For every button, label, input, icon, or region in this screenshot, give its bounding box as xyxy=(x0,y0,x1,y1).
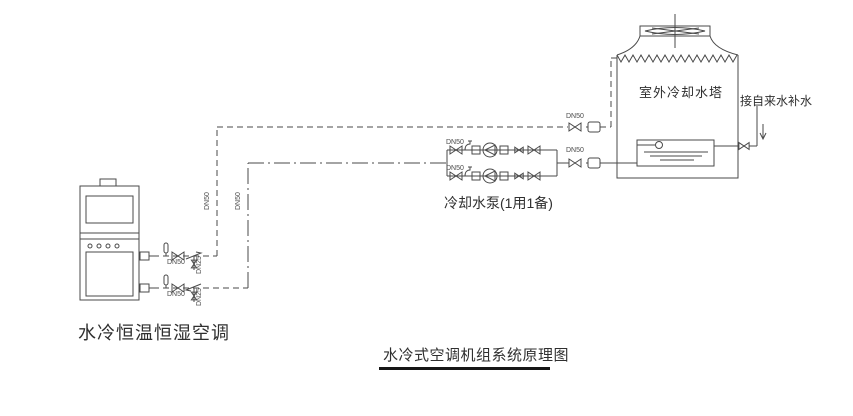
ac-indicator-dots xyxy=(88,244,119,248)
flex-connector-icon xyxy=(465,141,472,150)
riser-pipe-size-label: DN50 xyxy=(204,192,211,210)
pump-branch-size-label: DN50 xyxy=(446,139,464,146)
title-underline xyxy=(379,367,550,370)
makeup-water-line xyxy=(714,106,766,149)
drift-eliminator-zigzag xyxy=(617,55,737,62)
thermometer-icon xyxy=(164,243,168,256)
makeup-valve-icon xyxy=(739,143,749,150)
tower-flare-left xyxy=(617,36,640,55)
drain-pipe-size-label: DN25 xyxy=(196,288,203,306)
ac-unit-cabinet xyxy=(80,179,153,300)
ac-upper-panel xyxy=(86,196,133,223)
ac-pipe-connector-top xyxy=(140,252,149,260)
water-surface-lines xyxy=(644,152,708,160)
valve-icon xyxy=(569,123,581,131)
ac-upper-section xyxy=(80,186,139,233)
pump-group-label: 冷却水泵(1用1备) xyxy=(444,193,553,213)
float-valve-icon xyxy=(656,142,663,149)
pipe-size-label: DN50 xyxy=(167,291,185,298)
riser-pipe-size-label: DN50 xyxy=(235,192,242,210)
makeup-water-label: 接自来水补水 xyxy=(740,92,812,109)
flexible-joint-icon xyxy=(586,158,602,168)
tower-basin xyxy=(637,140,714,166)
pipe-size-label: DN50 xyxy=(167,259,185,266)
flow-arrow-down-icon xyxy=(760,124,766,139)
ac-top-tab xyxy=(100,179,116,186)
ac-pipe-connector-bottom xyxy=(140,284,149,292)
diagram-title: 水冷式空调机组系统原理图 xyxy=(383,344,569,365)
pump-branch-size-label: DN50 xyxy=(446,165,464,172)
cooling-tower-label: 室外冷却水塔 xyxy=(639,82,723,101)
drain-pipe-size-label: DN25 xyxy=(196,256,203,274)
flex-connector-icon xyxy=(465,167,472,176)
thermometer-icon xyxy=(164,275,168,288)
pump-group xyxy=(447,141,557,183)
tower-return-size-label: DN50 xyxy=(566,113,584,120)
ac-unit-label: 水冷恒温恒湿空调 xyxy=(78,319,230,345)
flexible-joint-icon xyxy=(586,122,602,132)
ac-lower-panel xyxy=(86,252,133,296)
return-pipe xyxy=(153,58,617,270)
diagram-canvas: DN50 DN25 DN50 DN25 DN50 DN50 DN50 DN50 … xyxy=(0,0,853,416)
ac-divider-band xyxy=(80,233,139,239)
tower-suction-size-label: DN50 xyxy=(566,147,584,154)
supply-pipe xyxy=(153,158,637,302)
valve-icon xyxy=(569,159,581,167)
tower-flare-right xyxy=(710,36,738,55)
